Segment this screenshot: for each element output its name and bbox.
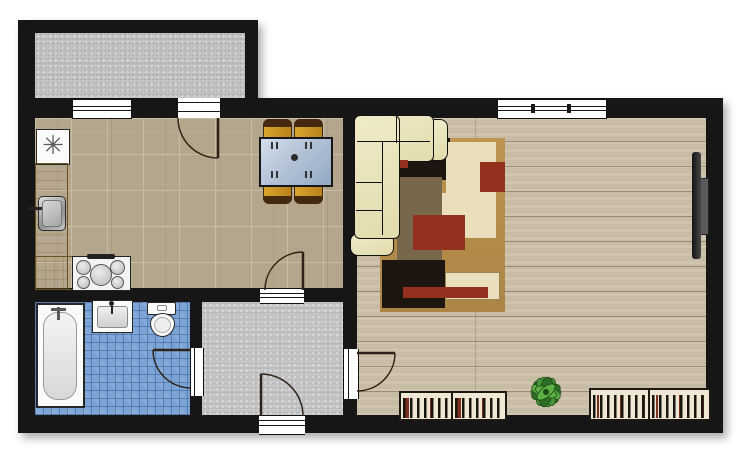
window-mullion xyxy=(567,104,571,113)
bathroom-door-opening xyxy=(190,348,204,396)
sofa-left-section xyxy=(354,115,400,239)
sofa-cushion-line xyxy=(356,182,382,183)
stove-grill xyxy=(87,254,115,259)
radiator xyxy=(589,388,652,421)
toilet-flush-button xyxy=(157,305,167,311)
rug-block-red-1 xyxy=(480,162,505,192)
stove xyxy=(72,256,131,291)
bathtub xyxy=(36,303,85,408)
stove-burner-large xyxy=(90,264,112,286)
place-setting xyxy=(305,142,307,149)
sofa-pillow xyxy=(400,160,408,168)
sofa-cushion-line xyxy=(357,141,430,142)
freezer-asterisk-icon: ✳ xyxy=(42,131,64,161)
sink-faucet xyxy=(28,207,42,210)
window-line xyxy=(73,106,131,107)
balcony-floor xyxy=(35,33,245,98)
window-line xyxy=(498,106,606,107)
floor-plan: ✳ xyxy=(0,0,748,460)
sofa-cushion-line xyxy=(396,117,397,143)
living-room-window xyxy=(497,99,607,119)
washbasin-tap-stem xyxy=(111,306,113,314)
table-centerpiece xyxy=(291,154,298,161)
sofa-cushion-line xyxy=(356,210,382,211)
living-room-door-opening xyxy=(343,349,359,399)
wall-balcony-right xyxy=(245,33,258,98)
stove-burner xyxy=(77,276,90,289)
bathtub-faucet-handle xyxy=(51,308,66,311)
radiator xyxy=(648,388,711,421)
dining-table xyxy=(259,137,333,187)
place-setting xyxy=(310,142,312,149)
place-setting xyxy=(271,142,273,149)
sofa-cushion-line xyxy=(382,142,383,235)
freezer: ✳ xyxy=(36,129,70,165)
kitchen-sink xyxy=(38,196,66,231)
window-mullion xyxy=(531,104,535,113)
place-setting xyxy=(276,142,278,149)
radiator xyxy=(399,391,455,421)
rug-block-black xyxy=(382,260,445,308)
balcony-door-opening xyxy=(177,98,221,118)
place-setting xyxy=(271,171,273,178)
radiator xyxy=(451,391,507,421)
window-line xyxy=(498,110,606,111)
washbasin xyxy=(92,300,133,333)
place-setting xyxy=(310,171,312,178)
rug-block-red-2 xyxy=(413,215,465,250)
place-setting xyxy=(305,171,307,178)
entrance-door-opening xyxy=(259,415,305,435)
wall-balcony-left xyxy=(18,33,35,98)
hall-floor xyxy=(202,302,343,415)
rug-block-red-bar xyxy=(403,287,488,298)
stove-burner xyxy=(111,276,124,289)
sink-basin xyxy=(42,200,62,227)
window-line xyxy=(73,110,131,111)
toilet-seat xyxy=(154,317,171,333)
kitchen-hall-door-opening xyxy=(260,288,304,304)
wall-balcony-top xyxy=(18,20,258,33)
wall-right xyxy=(706,118,723,415)
tv-screen xyxy=(692,152,701,259)
kitchen-window xyxy=(72,99,132,119)
place-setting xyxy=(276,171,278,178)
stove-burner xyxy=(76,260,91,275)
wall-left xyxy=(18,118,35,415)
bathtub-basin xyxy=(43,312,77,400)
stove-burner xyxy=(110,260,125,275)
